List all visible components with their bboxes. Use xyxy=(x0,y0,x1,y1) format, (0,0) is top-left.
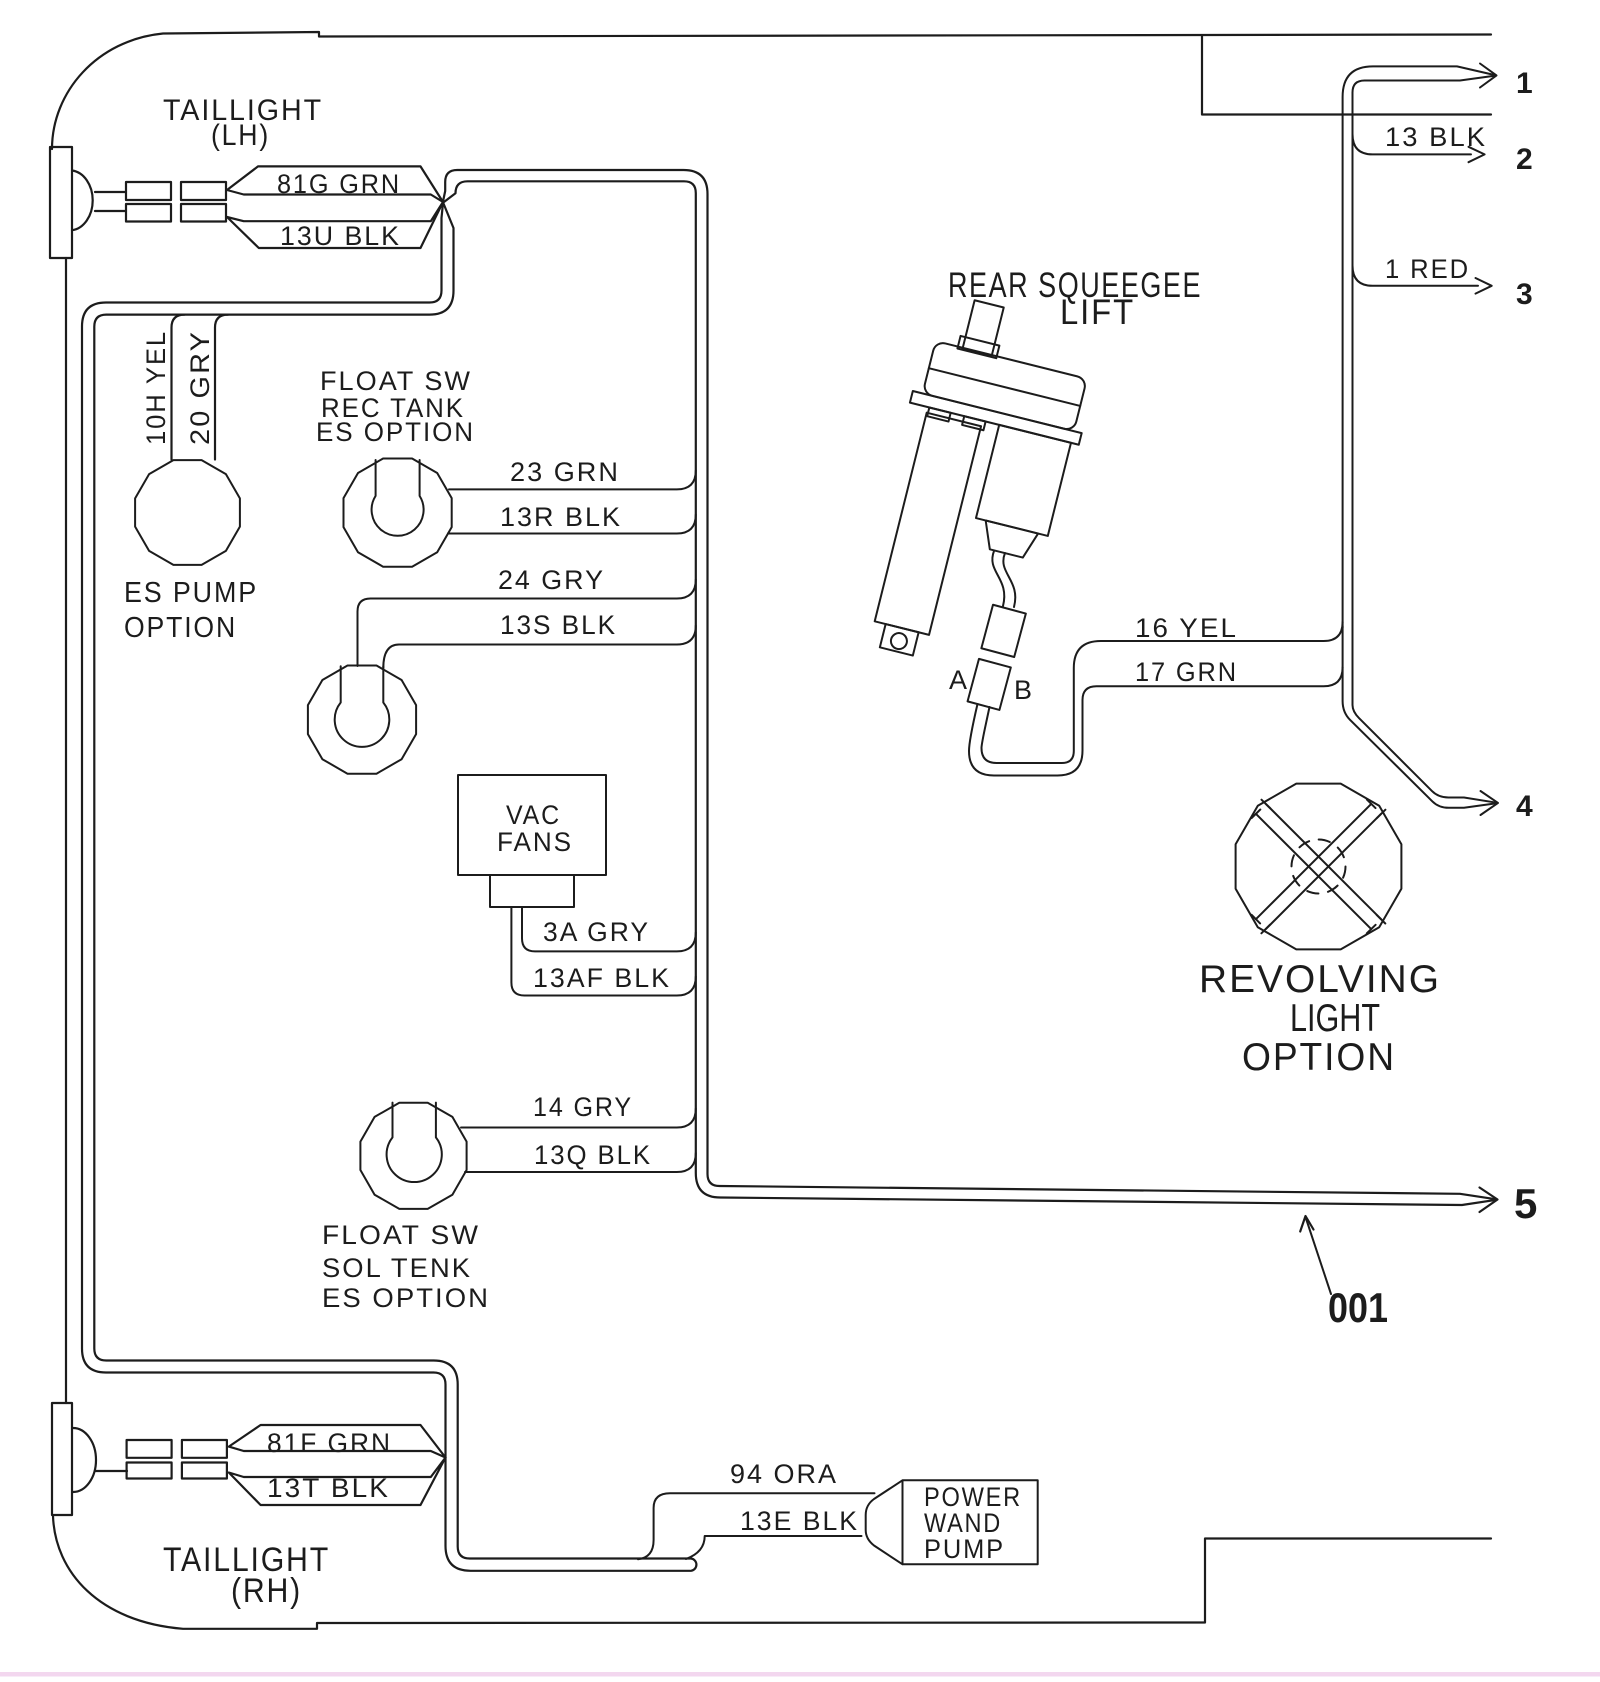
svg-text:13U BLK: 13U BLK xyxy=(280,221,401,251)
svg-text:13S BLK: 13S BLK xyxy=(500,610,617,640)
svg-text:3A GRY: 3A GRY xyxy=(543,917,650,947)
svg-text:20 GRY: 20 GRY xyxy=(185,330,215,445)
svg-text:A: A xyxy=(949,665,969,695)
svg-text:FLOAT SW: FLOAT SW xyxy=(322,1220,480,1250)
svg-text:24 GRY: 24 GRY xyxy=(498,565,605,595)
svg-text:13R BLK: 13R BLK xyxy=(500,502,622,532)
svg-text:16 YEL: 16 YEL xyxy=(1135,613,1238,643)
svg-text:FLOAT SW: FLOAT SW xyxy=(320,366,472,396)
svg-text:13Q BLK: 13Q BLK xyxy=(534,1140,652,1170)
svg-text:14 GRY: 14 GRY xyxy=(533,1092,633,1122)
svg-text:OPTION: OPTION xyxy=(1242,1036,1396,1079)
svg-text:ES OPTION: ES OPTION xyxy=(322,1283,490,1313)
svg-text:2: 2 xyxy=(1516,143,1533,176)
svg-text:13AF BLK: 13AF BLK xyxy=(533,963,671,993)
svg-text:13T BLK: 13T BLK xyxy=(267,1473,390,1503)
svg-text:ES PUMP: ES PUMP xyxy=(124,577,258,609)
svg-text:81G GRN: 81G GRN xyxy=(277,169,401,199)
svg-text:SOL TENK: SOL TENK xyxy=(322,1253,472,1283)
svg-text:5: 5 xyxy=(1514,1180,1537,1227)
svg-text:1: 1 xyxy=(1516,67,1533,100)
svg-text:FANS: FANS xyxy=(497,827,573,857)
svg-text:3: 3 xyxy=(1516,278,1533,311)
svg-text:LIGHT: LIGHT xyxy=(1290,997,1380,1040)
svg-text:10H YEL: 10H YEL xyxy=(141,330,171,445)
svg-text:LIFT: LIFT xyxy=(1060,293,1135,332)
svg-text:ES OPTION: ES OPTION xyxy=(316,417,475,447)
svg-text:VAC: VAC xyxy=(506,800,561,830)
svg-text:13 BLK: 13 BLK xyxy=(1385,122,1487,152)
svg-text:13E BLK: 13E BLK xyxy=(740,1506,859,1536)
svg-text:17 GRN: 17 GRN xyxy=(1135,657,1238,687)
svg-text:1 RED: 1 RED xyxy=(1385,254,1470,284)
svg-text:REVOLVING: REVOLVING xyxy=(1199,958,1441,1001)
svg-text:4: 4 xyxy=(1516,790,1533,823)
svg-text:(RH): (RH) xyxy=(231,1572,302,1610)
svg-text:94 ORA: 94 ORA xyxy=(730,1459,838,1489)
svg-text:001: 001 xyxy=(1328,1284,1388,1331)
svg-text:81F GRN: 81F GRN xyxy=(267,1428,392,1458)
svg-text:OPTION: OPTION xyxy=(124,612,237,644)
svg-text:23 GRN: 23 GRN xyxy=(510,457,620,487)
svg-text:PUMP: PUMP xyxy=(924,1534,1005,1564)
svg-text:B: B xyxy=(1014,675,1034,705)
svg-text:(LH): (LH) xyxy=(211,119,270,152)
